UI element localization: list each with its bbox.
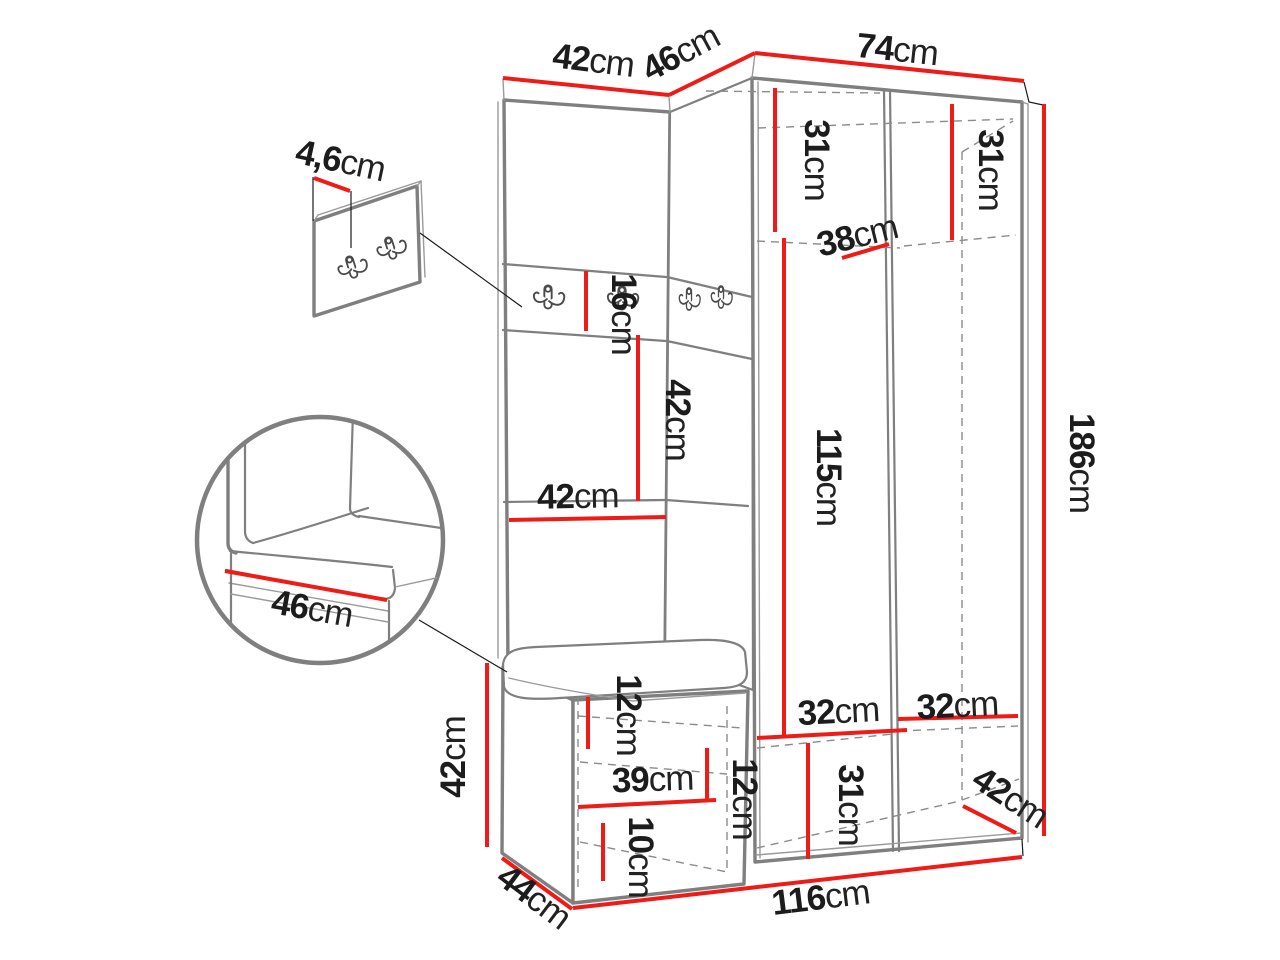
dim-label-total-width: 116cm (770, 872, 872, 923)
top-face-edge (669, 96, 670, 112)
diagram-canvas: 42cm 46cm 74cm 4,6cm 31cm 31cm 38cm 16cm… (0, 0, 1280, 960)
dim-label-bottom-left-width: 32cm (797, 690, 881, 733)
dim-label-top-width-left: 42cm (551, 36, 637, 85)
seat-corner-detail (197, 405, 507, 672)
dim-label-total-height: 186cm (1062, 413, 1101, 513)
extension-line-bottom-right (1022, 839, 1023, 856)
dim-label-interior-right-height: 31cm (971, 129, 1010, 211)
left-column-front-face (504, 100, 670, 668)
leader-line-detail (419, 620, 507, 672)
dim-label-bench-right-inset: 12cm (725, 758, 764, 840)
dim-label-hook-strip-height: 16cm (604, 273, 643, 355)
dim-label-back-panel-height: 42cm (658, 379, 697, 461)
dim-label-back-panel-width: 42cm (537, 476, 619, 516)
dim-label-interior-left-height: 31cm (797, 119, 836, 201)
dim-label-bottom-section-height: 31cm (831, 764, 870, 846)
top-face-edge (503, 79, 504, 100)
hook-panel-detail (313, 177, 522, 316)
dim-label-bench-shelf-width: 39cm (611, 759, 694, 801)
dim-label-bench-top-inset: 12cm (609, 674, 648, 756)
dim-label-bench-bottom-height: 10cm (621, 816, 660, 898)
top-face-edge (752, 54, 755, 78)
dim-line-top-width-left (503, 78, 669, 95)
dim-label-bottom-right-width: 32cm (916, 684, 1000, 727)
furniture-dimension-diagram: 42cm 46cm 74cm 4,6cm 31cm 31cm 38cm 16cm… (0, 0, 1280, 960)
hook-panel-side-edge (421, 181, 425, 277)
dim-label-bench-height: 42cm (434, 716, 473, 798)
extension-line-top-right (1024, 82, 1043, 105)
dim-label-top-width-middle: 46cm (635, 16, 725, 89)
dim-label-door-height: 115cm (809, 428, 848, 526)
dim-label-panel-thickness: 4,6cm (292, 132, 388, 189)
